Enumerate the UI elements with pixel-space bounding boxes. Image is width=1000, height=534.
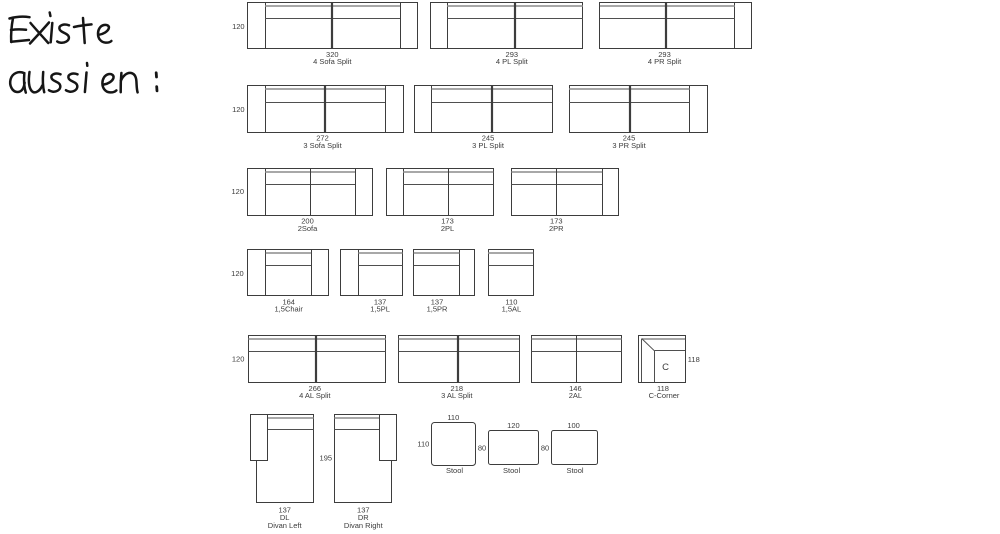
- svg-text:118: 118: [688, 355, 700, 364]
- svg-text:C: C: [662, 362, 669, 373]
- svg-text:2AL: 2AL: [569, 391, 582, 400]
- svg-text:1,5PR: 1,5PR: [427, 305, 448, 314]
- svg-text:2PL: 2PL: [441, 224, 454, 233]
- svg-text:80: 80: [478, 444, 486, 453]
- svg-text:195: 195: [320, 453, 333, 462]
- svg-text:Divan Left: Divan Left: [268, 521, 303, 530]
- svg-text:120: 120: [232, 105, 245, 114]
- svg-text:2PR: 2PR: [549, 224, 564, 233]
- svg-text:110: 110: [447, 413, 459, 422]
- svg-text:120: 120: [507, 421, 520, 430]
- svg-text:1,5Chair: 1,5Chair: [275, 305, 304, 314]
- svg-text:110: 110: [417, 440, 429, 449]
- svg-text:3 Sofa Split: 3 Sofa Split: [303, 141, 342, 150]
- svg-text:100: 100: [567, 421, 580, 430]
- svg-text:3 PL Split: 3 PL Split: [472, 141, 505, 150]
- svg-text:80: 80: [541, 444, 549, 453]
- svg-text:3 PR Split: 3 PR Split: [612, 141, 646, 150]
- svg-text:120: 120: [232, 355, 245, 364]
- svg-text:120: 120: [232, 22, 245, 31]
- svg-text:4 PL Split: 4 PL Split: [496, 57, 529, 66]
- svg-text:C-Corner: C-Corner: [649, 391, 680, 400]
- svg-text:4 AL Split: 4 AL Split: [299, 391, 331, 400]
- svg-text:1,5PL: 1,5PL: [370, 305, 390, 314]
- svg-text:Stool: Stool: [503, 466, 520, 475]
- svg-text:Divan Right: Divan Right: [344, 521, 384, 530]
- svg-text:1,5AL: 1,5AL: [502, 305, 522, 314]
- svg-text:Stool: Stool: [566, 466, 583, 475]
- svg-text:120: 120: [231, 269, 244, 278]
- svg-text:120: 120: [231, 187, 244, 196]
- svg-text:Stool: Stool: [446, 466, 463, 475]
- svg-text:4 PR Split: 4 PR Split: [648, 57, 682, 66]
- svg-text:3 AL Split: 3 AL Split: [441, 391, 473, 400]
- svg-text:4 Sofa Split: 4 Sofa Split: [313, 57, 352, 66]
- svg-text:2Sofa: 2Sofa: [298, 224, 318, 233]
